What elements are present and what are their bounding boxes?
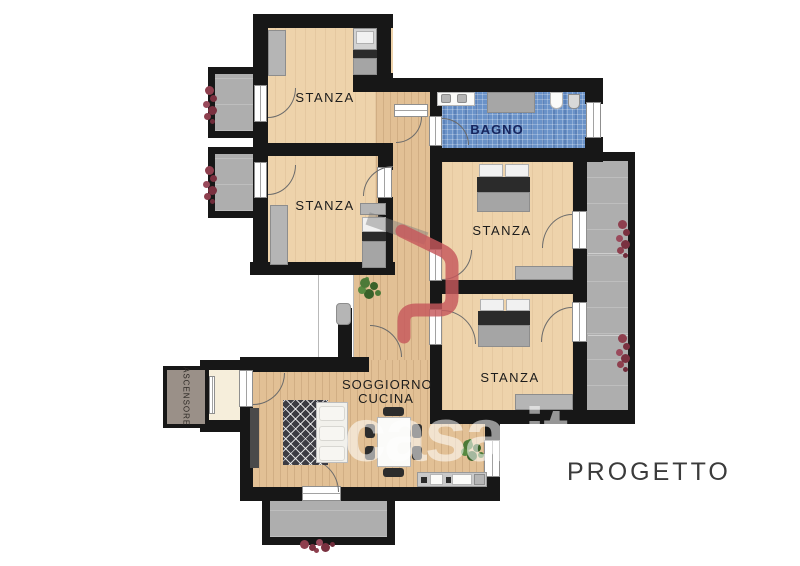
wall [253,14,268,267]
kitchen-stove [421,477,427,483]
bagno-window [586,102,601,138]
wall [485,476,500,501]
balcony-bottom [262,500,395,545]
toilet [550,92,563,109]
stanza3-door [429,249,442,281]
wall [585,78,603,104]
dining-chair [365,446,375,460]
bed-blanket [353,58,377,75]
bed-blanket [477,192,530,212]
dining-chair [383,407,404,416]
dining-chair [412,424,422,438]
kitchen-appliance [430,474,443,485]
wardrobe [270,205,288,265]
shower-tub [487,92,535,113]
plan-caption: PROGETTO [567,458,731,487]
wardrobe [515,394,573,410]
stanza3-label: STANZA [462,223,542,238]
stanza4-balcony-door [572,302,587,342]
balcony-top-left [208,67,258,138]
sofa-cushion [319,426,345,441]
soggiorno-label-line1: SOGGIORNO [342,378,430,392]
sofa-cushion [319,446,345,461]
bed-pillow [505,164,529,177]
bidet [568,94,580,109]
bed-pillow [480,299,504,311]
stanza4-door [429,309,442,345]
plant-icon [205,166,214,175]
stanza2-balcony-window [254,162,267,198]
wall [383,78,603,92]
elevator-door [209,376,215,414]
bed-band [478,311,530,325]
wall [430,281,442,310]
tv-panel [250,408,259,468]
wall [442,280,585,294]
wardrobe [268,30,286,76]
entrance-door [239,370,253,407]
bed-blanket [478,325,530,347]
stanza4-label: STANZA [470,370,550,385]
sink-basin [441,94,451,103]
kitchen-sink [446,477,451,483]
wall [253,143,393,156]
bed-blanket [362,241,386,268]
plant-icon [618,334,627,343]
bed-pillow [356,31,374,44]
bed-band [353,50,377,58]
balcony-right-joint [588,253,628,254]
wall [573,162,587,212]
kitchen-appliance [452,474,472,485]
bagno-door [429,116,442,146]
plant-icon [463,440,473,450]
dining-chair [412,446,422,460]
bagno-label: BAGNO [457,122,537,137]
bed-pillow [479,164,503,177]
plant-icon [300,540,309,549]
dining-chair [365,424,375,438]
floorplan-canvas: ASCENSORE [0,0,800,566]
kitchen-module [474,474,485,485]
wall [243,357,369,372]
stanza2-label: STANZA [285,198,365,213]
wall [430,162,442,250]
sofa [316,402,348,463]
balcony-right [585,152,635,412]
stanza3-balcony-door [572,211,587,249]
plant-icon [618,220,627,229]
corridor-door [394,104,428,117]
wardrobe [515,266,573,280]
stanza1-label: STANZA [285,90,365,105]
bed-pillow [506,299,530,311]
soggiorno-label-line2: CUCINA [342,392,430,406]
sink-basin [457,94,467,103]
wall [430,410,635,424]
dining-table [377,417,411,467]
bed-band [362,232,386,241]
wall [585,137,603,162]
wall [240,487,304,501]
wall [573,248,587,304]
ac-unit [336,303,351,325]
plant-icon [205,86,214,95]
wall [339,487,500,501]
wall [253,14,393,28]
wall [430,148,603,162]
elevator-label: ASCENSORE [167,370,205,424]
balcony-mid-left [208,147,258,218]
soggiorno-label: SOGGIORNO CUCINA [342,378,430,406]
stanza1-balcony-window [254,85,267,122]
bed-band [477,177,530,192]
sofa-cushion [319,406,345,421]
plant-icon [360,278,370,288]
dining-chair [383,468,404,477]
wall [485,421,500,441]
elevator-box: ASCENSORE [163,366,209,428]
